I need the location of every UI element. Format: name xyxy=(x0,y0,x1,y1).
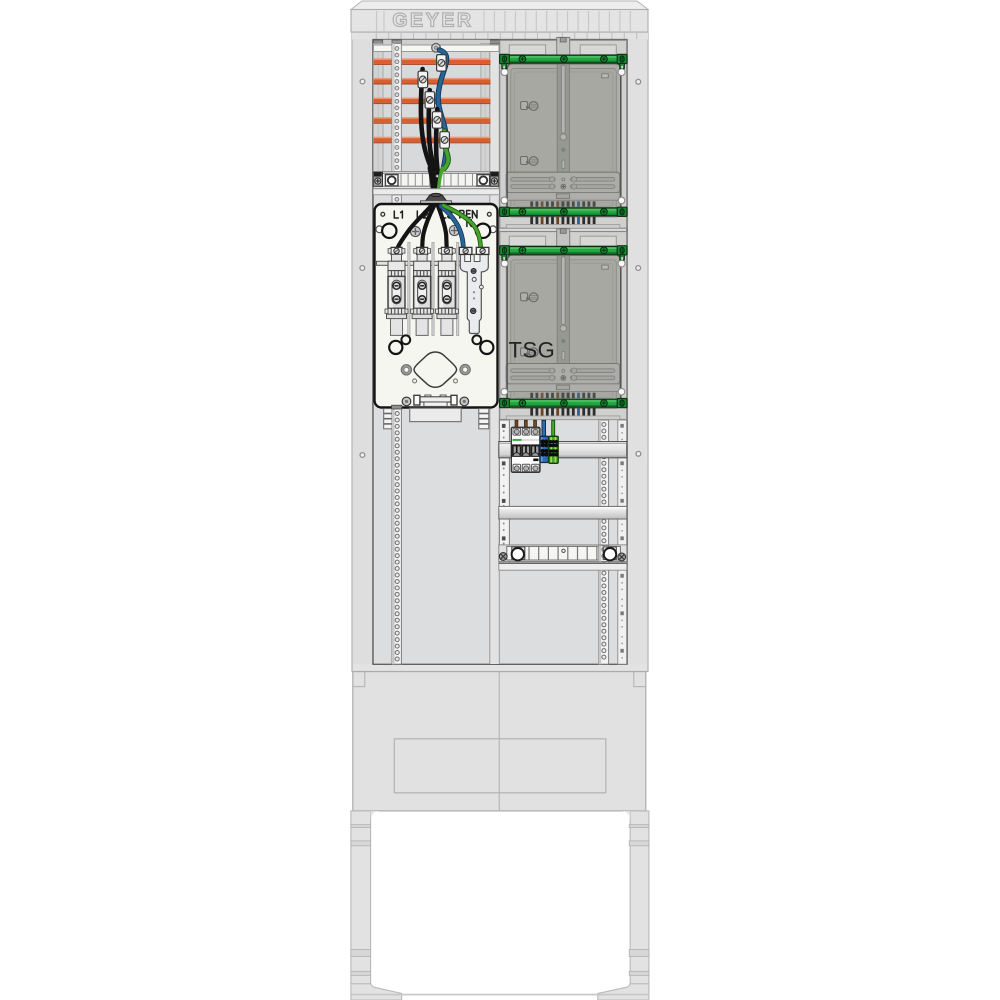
svg-text:TSG: TSG xyxy=(509,338,556,363)
svg-text:GEYER: GEYER xyxy=(392,10,473,32)
